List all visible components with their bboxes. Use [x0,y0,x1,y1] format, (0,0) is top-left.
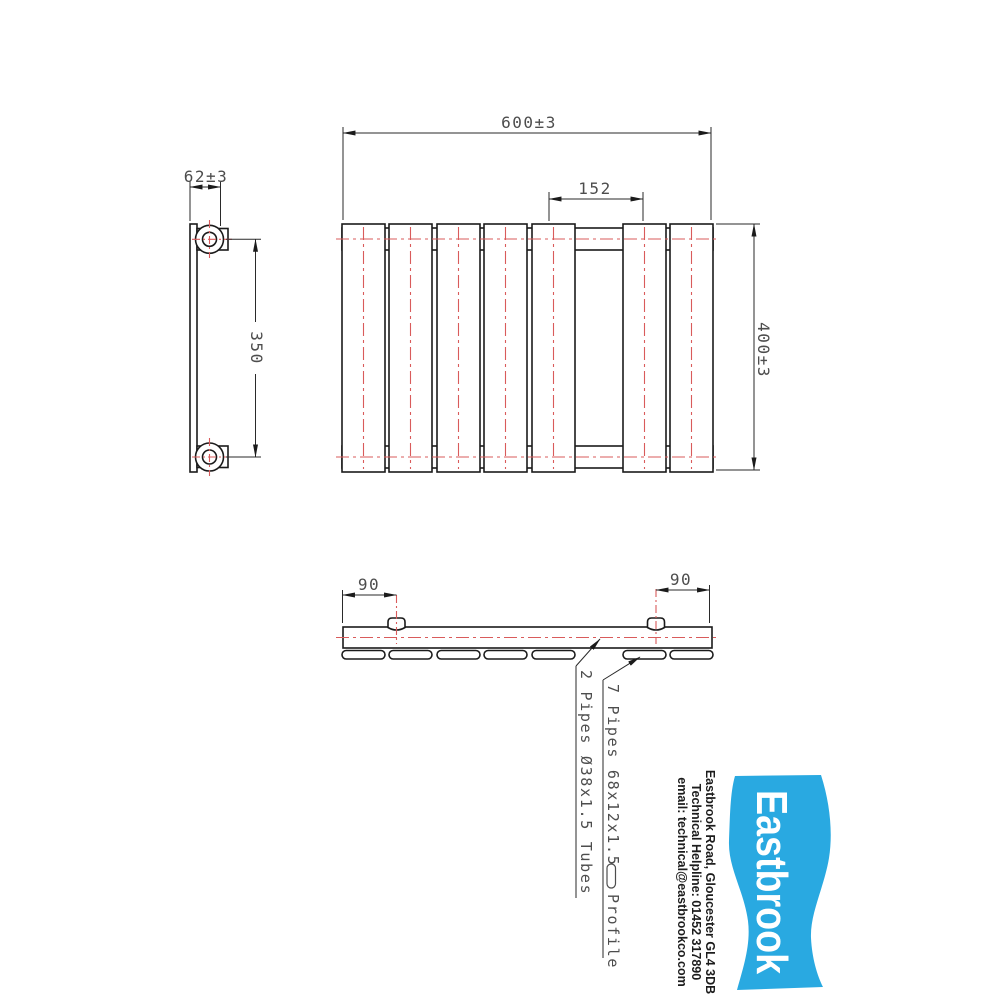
annotation-tubes: 2 Pipes Ø38x1.5 Tubes [576,639,600,898]
panel-profile [342,651,385,660]
drawing-svg: 600±3 152 400±3 62±3 [0,0,1000,1000]
dim-overall-height-label: 400±3 [754,322,773,378]
panel-profile [532,651,575,660]
panel-profile [484,651,527,660]
panel-profile [389,651,432,660]
logo-address: Eastbrook Road, Gloucester GL4 3DB [703,770,717,994]
dimension-offset-left: 90 [343,575,397,623]
front-view [336,224,719,472]
panel-profile [670,651,713,660]
brand-wordmark: Eastbrook [747,790,796,974]
dim-offset-right-label: 90 [670,570,692,589]
dim-tapping-centres-label: 152 [578,179,611,198]
dim-overall-width-label: 600±3 [501,113,557,132]
profile-suffix-label: Profile [604,894,622,969]
radiator-technical-drawing: 600±3 152 400±3 62±3 [0,0,1000,1000]
dimension-overall-height: 400±3 [716,224,773,470]
profile-label: 7 Pipes 68x12x1.5 [604,684,622,866]
panel-profile [623,651,666,660]
logo-email: email: technical@eastbrookco.com [675,777,689,986]
panel-profile [437,651,480,660]
dim-bracket-centres-label: 350 [247,331,266,364]
profile-shape-icon [607,864,616,888]
logo-block: Eastbrook Eastbrook Road, Gloucester GL4… [675,770,831,994]
dimension-tapping-centres: 152 [549,179,643,221]
plan-view [336,589,719,659]
dimension-bracket-centres: 350 [226,239,266,457]
dim-offset-left-label: 90 [358,575,380,594]
dimension-depth: 62±3 [184,167,229,226]
side-view [190,220,232,476]
logo-helpline: Technical Helpline: 01452 317890 [689,784,703,980]
annotation-profile: 7 Pipes 68x12x1.5 Profile [603,657,640,969]
side-panel-edge [190,224,197,472]
dim-depth-label: 62±3 [184,167,229,186]
dimension-offset-right: 90 [656,570,710,623]
dimension-overall-width: 600±3 [343,113,711,220]
tubes-label: 2 Pipes Ø38x1.5 Tubes [577,670,595,895]
